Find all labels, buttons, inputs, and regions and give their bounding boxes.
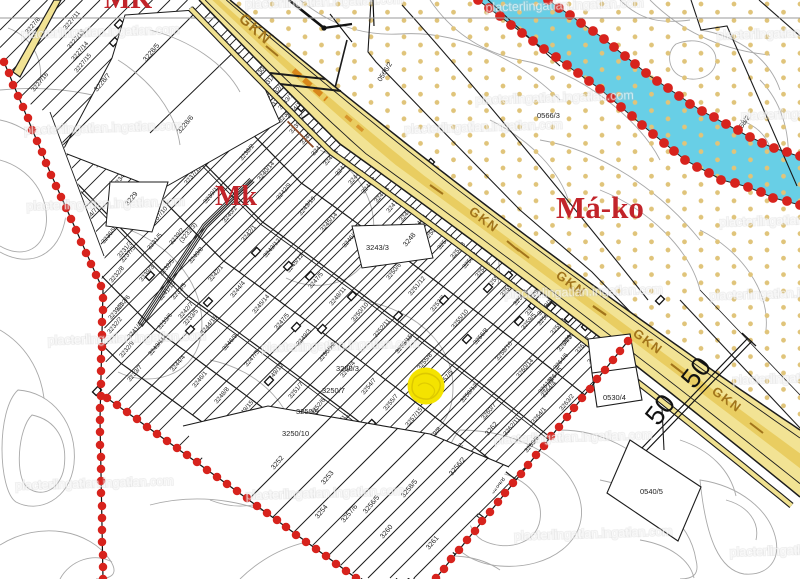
svg-text:0530/4: 0530/4 [603, 393, 626, 402]
svg-text:0540/5: 0540/5 [640, 487, 663, 496]
svg-text:3243/3: 3243/3 [366, 243, 389, 252]
svg-text:3250/9: 3250/9 [296, 407, 319, 416]
svg-text:Mk: Mk [215, 181, 257, 212]
svg-text:Má-ko: Má-ko [556, 190, 644, 225]
svg-text:MK: MK [104, 0, 152, 15]
svg-text:3250/10: 3250/10 [282, 429, 309, 438]
svg-text:3250/7: 3250/7 [322, 386, 345, 395]
svg-text:3250/3: 3250/3 [336, 364, 359, 373]
